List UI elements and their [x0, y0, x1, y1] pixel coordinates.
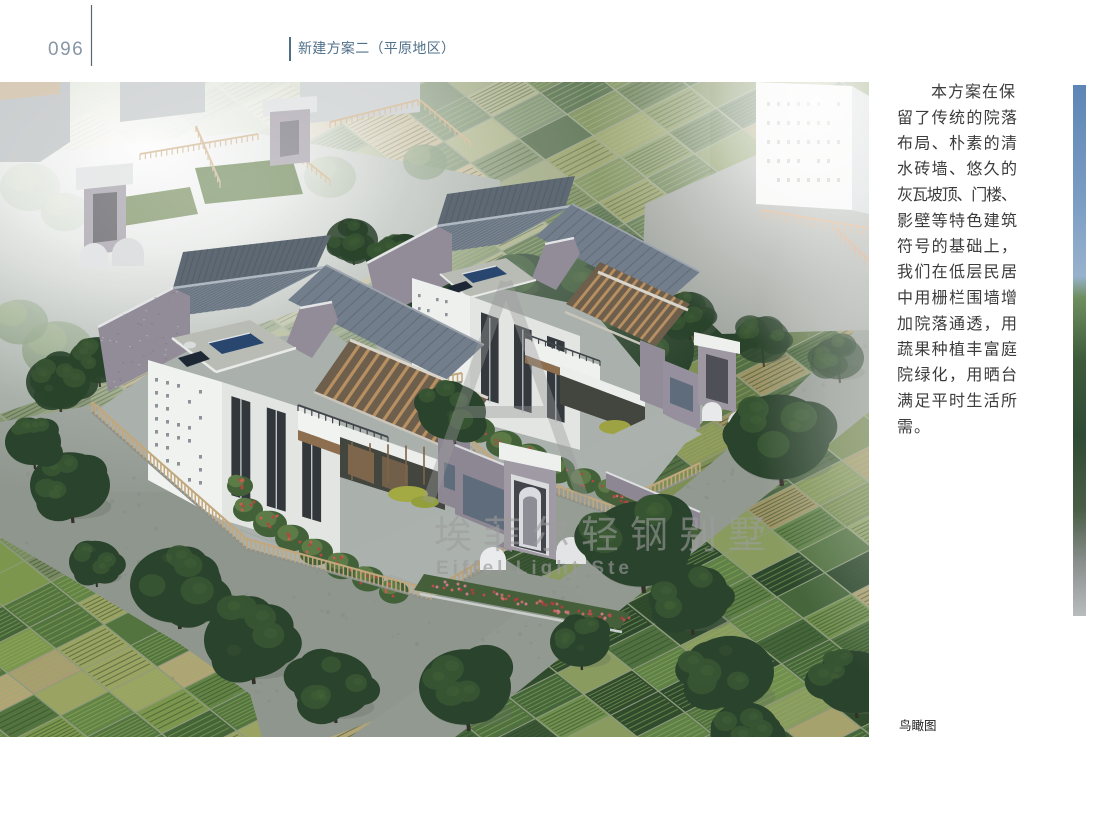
svg-text:加院落通透，用: 加院落通透，用: [897, 315, 1018, 333]
svg-text:本方案在保: 本方案在保: [897, 83, 1016, 101]
svg-text:埃菲尔轻钢别墅: 埃菲尔轻钢别墅: [434, 515, 777, 557]
svg-text:影壁等特色建筑: 影壁等特色建筑: [897, 211, 1018, 230]
svg-text:鸟瞰图: 鸟瞰图: [899, 718, 937, 733]
svg-text:满足平时生活所: 满足平时生活所: [897, 392, 1018, 410]
svg-text:096: 096: [48, 39, 84, 60]
svg-text:蔬果种植丰富庭: 蔬果种植丰富庭: [897, 341, 1018, 359]
svg-text:我们在低层民居: 我们在低层民居: [897, 263, 1018, 281]
svg-text:需。: 需。: [897, 418, 931, 436]
svg-text:中用栅栏围墙增: 中用栅栏围墙增: [897, 289, 1018, 307]
svg-text:新建方案二（平原地区）: 新建方案二（平原地区）: [298, 40, 455, 56]
svg-text:水砖墙、悠久的: 水砖墙、悠久的: [897, 160, 1018, 178]
svg-text:留了传统的院落: 留了传统的院落: [897, 109, 1018, 127]
svg-text:符号的基础上，: 符号的基础上，: [897, 238, 1018, 256]
svg-text:Eiffel Light Ste: Eiffel Light Ste: [436, 558, 633, 579]
svg-text:院绿化，用晒台: 院绿化，用晒台: [897, 366, 1018, 384]
svg-text:灰瓦坡顶、门楼、: 灰瓦坡顶、门楼、: [897, 186, 1018, 204]
svg-text:布局、朴素的清: 布局、朴素的清: [897, 135, 1018, 153]
